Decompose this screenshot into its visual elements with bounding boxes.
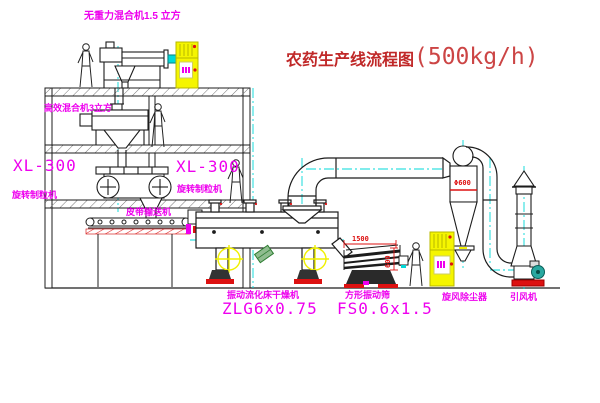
screen-length-dimension: 1500 — [352, 236, 369, 243]
exhaust-duct-drawing — [283, 158, 450, 223]
fan-name-label: 引风机 — [510, 293, 537, 302]
granulator-right-name-label: 旋转制粒机 — [177, 185, 222, 194]
granulator-right-model-label: XL-300 — [176, 159, 240, 175]
control-cabinet-bottom — [430, 232, 454, 286]
screen-width-dimension: 600 — [385, 255, 392, 268]
fluid-bed-dryer-drawing — [196, 200, 352, 284]
granulator-left-model-label: XL-300 — [13, 158, 77, 174]
screen-model-label: FS0.6x1.5 — [337, 301, 433, 317]
cyclone-name-label: 旋风除尘器 — [442, 293, 487, 302]
diagram-capacity: (500kg/h) — [414, 46, 539, 69]
belt-conveyor-drawing — [86, 218, 190, 287]
cad-flow-diagram: 无重力混合机1.5 立方 高效混合机3立方 XL-300 旋转制粒机 XL-30… — [0, 0, 600, 403]
dryer-model-label: ZLG6x0.75 — [222, 301, 318, 317]
vibrating-screen-drawing — [344, 240, 408, 288]
mixer-top-label: 无重力混合机1.5 立方 — [84, 12, 181, 22]
granulator-left-name-label: 旋转制粒机 — [12, 191, 57, 200]
person-ground — [408, 243, 423, 286]
mixer-mid-drawing — [80, 104, 148, 167]
cyclone-diameter-dimension: Φ600 — [454, 180, 471, 187]
person-top-floor — [78, 44, 93, 87]
mixer-mid-label: 高效混合机3立方 — [44, 104, 112, 113]
belt-conveyor-label: 皮带输送机 — [126, 208, 171, 217]
control-cabinet-top — [176, 42, 198, 88]
exhaust-stack-drawing — [511, 171, 537, 266]
diagram-title: 农药生产线流程图 — [286, 53, 414, 69]
